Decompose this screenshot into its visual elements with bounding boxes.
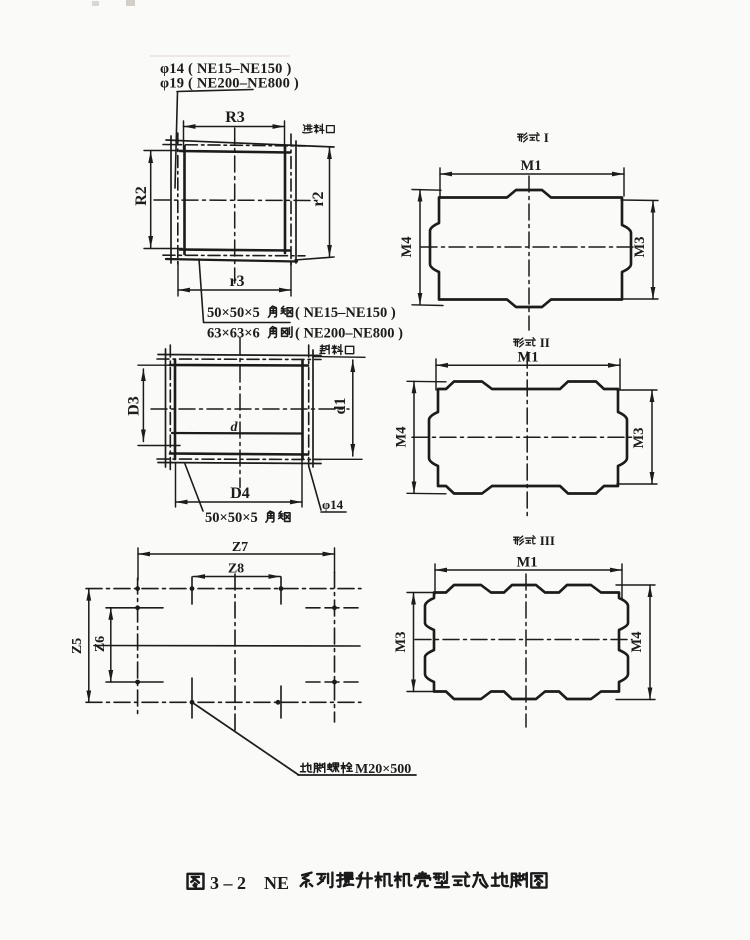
- svg-text:63×63×6: 63×63×6: [207, 326, 260, 342]
- svg-text:R2: R2: [133, 186, 150, 206]
- svg-text:( NE15–NE150 ): ( NE15–NE150 ): [295, 305, 396, 321]
- svg-text:D4: D4: [230, 485, 250, 502]
- svg-text:3 – 2: 3 – 2: [210, 873, 246, 893]
- svg-text:M4: M4: [399, 237, 415, 258]
- svg-text:I: I: [544, 130, 549, 145]
- svg-text:M20×500: M20×500: [355, 762, 411, 777]
- svg-text:M1: M1: [518, 350, 539, 366]
- svg-text:r3: r3: [229, 273, 244, 290]
- svg-text:M4: M4: [394, 427, 410, 448]
- svg-text:φ19 ( NE200–NE800 ): φ19 ( NE200–NE800 ): [160, 76, 299, 92]
- svg-text:R3: R3: [225, 109, 245, 126]
- svg-text:d1: d1: [332, 398, 349, 415]
- svg-text:Z6: Z6: [93, 636, 108, 652]
- svg-text:Z8: Z8: [228, 562, 244, 577]
- svg-text:φ14: φ14: [322, 497, 344, 512]
- svg-text:II: II: [540, 335, 550, 350]
- svg-text:M1: M1: [521, 158, 542, 174]
- svg-text:50×50×5: 50×50×5: [207, 305, 260, 321]
- svg-text:D3: D3: [126, 396, 143, 416]
- svg-text:M4: M4: [629, 632, 645, 653]
- svg-text:r2: r2: [310, 191, 327, 206]
- svg-text:NE: NE: [264, 873, 289, 893]
- svg-text:d: d: [231, 420, 239, 435]
- svg-text:M3: M3: [393, 632, 409, 653]
- svg-text:Z7: Z7: [232, 540, 248, 555]
- svg-text:M1: M1: [517, 555, 538, 571]
- svg-text:III: III: [540, 533, 555, 548]
- svg-text:50×50×5: 50×50×5: [205, 510, 258, 526]
- svg-text:M3: M3: [632, 237, 648, 258]
- svg-text:( NE200–NE800 ): ( NE200–NE800 ): [295, 326, 403, 342]
- svg-text:M3: M3: [631, 428, 647, 449]
- svg-text:Z5: Z5: [70, 638, 85, 654]
